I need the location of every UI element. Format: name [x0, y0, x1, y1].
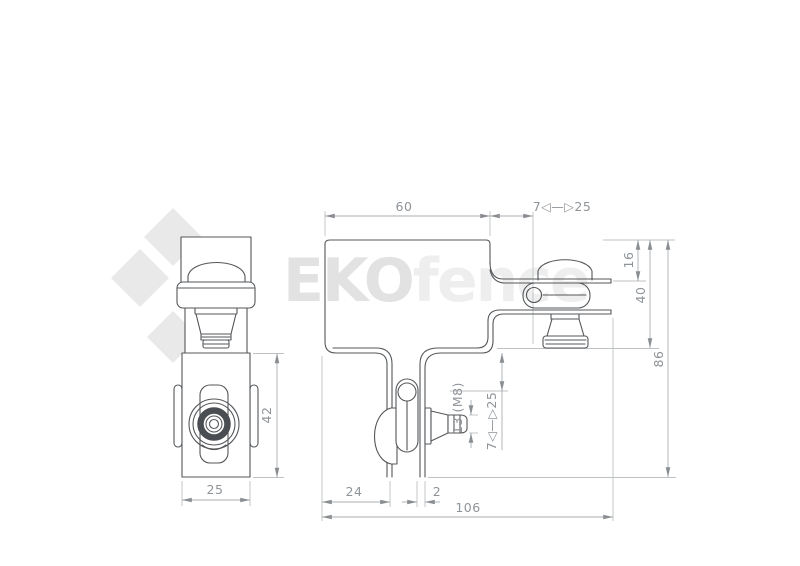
front-right-tab — [250, 385, 258, 447]
front-bolt-cone — [196, 314, 236, 334]
dim-label-2: 2 — [433, 484, 441, 499]
front-left-tab — [174, 385, 182, 447]
side-bottom-bolt-cone — [431, 411, 448, 441]
front-slot-plate — [200, 385, 228, 463]
dim-label-side-range: 7◁—▷25 — [484, 392, 499, 451]
technical-drawing-page: EKOfence — [0, 0, 800, 566]
watermark-bold: EKO — [283, 246, 413, 316]
dim-label-24: 24 — [346, 484, 363, 499]
dim-label-42: 42 — [259, 407, 274, 424]
watermark-text: EKOfence — [283, 246, 589, 316]
dim-label-86: 86 — [651, 351, 666, 368]
dim-label-40: 40 — [633, 287, 648, 304]
technical-drawing: EKOfence — [0, 0, 800, 566]
side-bottom-dome — [375, 408, 398, 464]
front-bolt-washer — [195, 308, 237, 314]
side-top-bolt-cone — [547, 319, 584, 336]
side-bottom-link-hole — [398, 383, 416, 401]
logo-diamond — [111, 249, 169, 307]
side-clamp-arm — [420, 310, 611, 477]
watermark-light: fence — [413, 246, 589, 316]
dim-label-top-width: 60 — [396, 199, 413, 214]
dim-label-top-range: 7◁—▷25 — [533, 199, 592, 214]
front-view — [174, 237, 258, 477]
dim-label-25: 25 — [207, 482, 224, 497]
dim-label-106: 106 — [455, 500, 480, 515]
dim-label-nut: 13 (M8) — [450, 382, 465, 434]
side-bottom-bolt-flange — [425, 408, 431, 444]
dim-label-16: 16 — [621, 252, 636, 269]
front-clamp-collar — [177, 282, 255, 308]
side-top-bolt-washer — [543, 336, 588, 348]
